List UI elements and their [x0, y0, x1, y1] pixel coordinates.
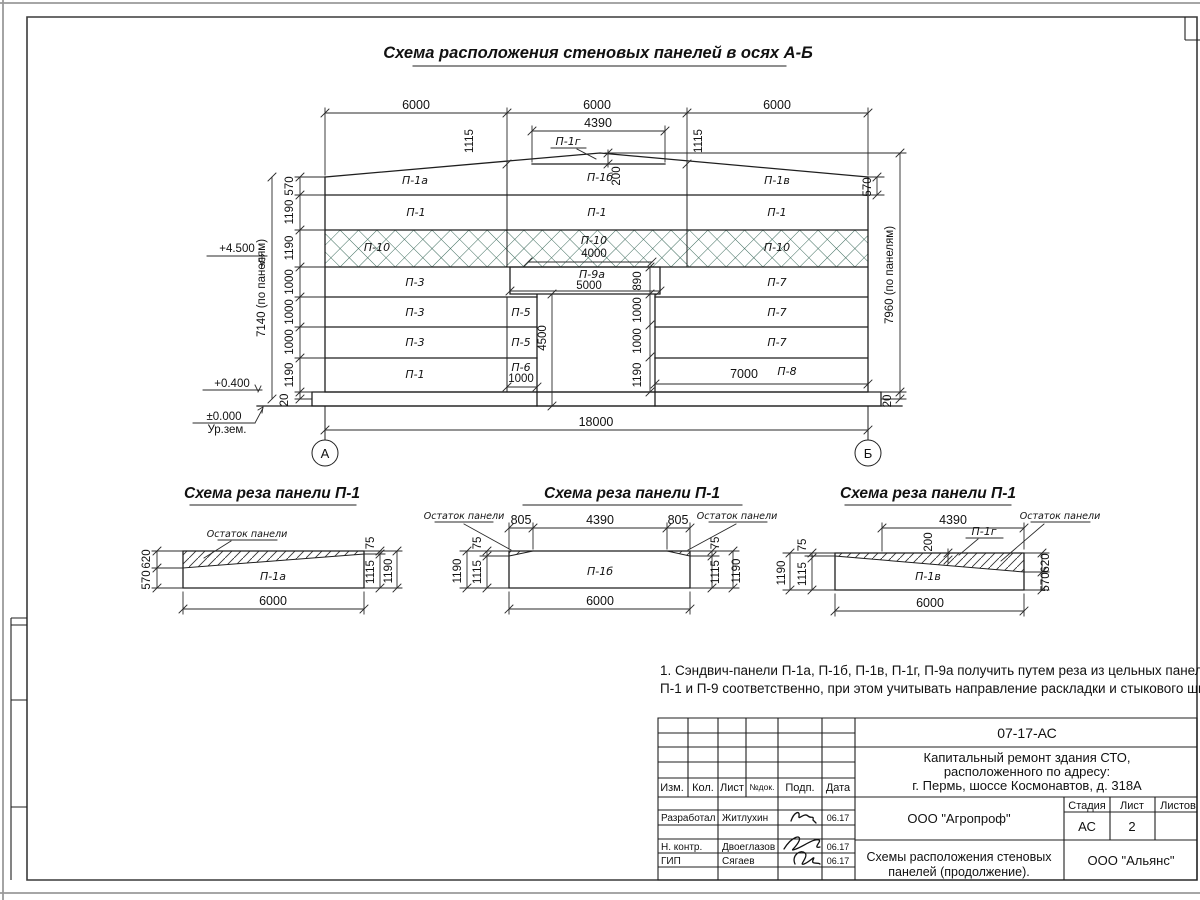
project-name-line1: Капитальный ремонт здания СТО,: [924, 750, 1131, 765]
panel-label-p7-r5: П-7: [767, 306, 786, 319]
scheme3-dim-1115: 1115: [797, 562, 809, 586]
ground-label: Ур.зем.: [207, 424, 246, 436]
cut-scheme-2: Схема реза панели П-1 Остаток панели Ост…: [424, 485, 778, 614]
panel-label-p3-r4: П-3: [405, 276, 424, 289]
scheme3-dim-4390: 4390: [939, 513, 967, 527]
scheme1-dim-1115: 1115: [365, 560, 377, 584]
dim-left-20: 20: [279, 394, 291, 407]
dim-5000: 5000: [576, 280, 602, 292]
panel-label-p10-b: П-10: [581, 234, 607, 247]
dim-left-total: 7140 (по панелям): [256, 239, 268, 337]
row-gip-role: ГИП: [661, 856, 681, 867]
panel-label-p1v: П-1в: [764, 174, 790, 187]
level-mark-0400: +0.400: [214, 378, 250, 390]
sheets-label: Листов: [1160, 800, 1196, 812]
dim-left-1000c: 1000: [284, 329, 296, 355]
dim-1115-left: 1115: [464, 129, 476, 153]
sheet-value: 2: [1128, 819, 1135, 834]
row-ncontrol-date: 06.17: [827, 842, 850, 852]
scheme1-dim-570: 570: [141, 570, 153, 589]
scheme1-dim-75: 75: [365, 537, 377, 550]
sheet-title-line2: панелей (продолжение).: [888, 865, 1029, 879]
row-developer-date: 06.17: [827, 813, 850, 823]
signature-developer: [791, 813, 816, 823]
dim-4390: 4390: [584, 116, 612, 130]
header-izm: Изм.: [660, 782, 684, 794]
scheme3-dim-1190: 1190: [776, 561, 788, 586]
scheme1-dim-6000: 6000: [259, 594, 287, 608]
level-mark-0000: ±0.000: [206, 411, 241, 423]
stage-value: АС: [1078, 819, 1096, 834]
panel-label-p1g: П-1г: [555, 135, 580, 148]
scheme3-dim-75: 75: [797, 539, 809, 552]
panel-label-p10-c: П-10: [764, 241, 790, 254]
scheme1-dim-620: 620: [141, 549, 153, 568]
sheet-title-line1: Схемы расположения стеновых: [867, 850, 1053, 864]
level-mark-4500: +4.500: [219, 243, 255, 255]
row-gip-name: Сягаев: [722, 856, 755, 867]
dim-left-1190b: 1190: [284, 236, 296, 261]
scheme2-panel-label: П-1б: [587, 565, 613, 578]
dim-18000: 18000: [579, 415, 614, 429]
axis-label-b: Б: [864, 446, 873, 461]
scheme2-dim-805-left: 805: [511, 513, 532, 527]
drawing-canvas: Схема расположения стеновых панелей в ос…: [0, 0, 1200, 900]
dim-1000-p6: 1000: [508, 373, 534, 385]
dim-1115-right: 1115: [693, 129, 705, 153]
title-block: 07-17-АС Капитальный ремонт здания СТО, …: [658, 718, 1197, 880]
scheme3-title: Схема реза панели П-1: [840, 485, 1016, 502]
header-list: Лист: [720, 782, 744, 794]
dim-bay-2: 6000: [583, 98, 611, 112]
panel-label-p1-r2b: П-1: [587, 206, 606, 219]
panel-label-p5-r5: П-5: [511, 306, 530, 319]
doc-number: 07-17-АС: [997, 725, 1057, 741]
scheme3-dim-6000: 6000: [916, 596, 944, 610]
dim-door-1000a: 1000: [632, 297, 644, 323]
scheme3-dim-570: 570: [1040, 572, 1052, 591]
row-ncontrol-name: Двоеглазов: [722, 842, 775, 853]
row-gip-date: 06.17: [827, 856, 850, 866]
header-podp: Подп.: [785, 782, 814, 794]
company-name: ООО "Агропроф": [907, 811, 1011, 826]
scheme2-remnant-label-left: Остаток панели: [424, 511, 505, 522]
panel-label-p7-r4: П-7: [767, 276, 786, 289]
panel-label-p3-r6: П-3: [405, 336, 424, 349]
row-developer-name: Житлухин: [722, 813, 768, 824]
scheme2-dim-1115-right: 1115: [710, 560, 722, 584]
cut-scheme-3: Схема реза панели П-1 Остаток панели П-1…: [776, 485, 1100, 616]
header-data: Дата: [826, 782, 851, 794]
dim-bay-1: 6000: [402, 98, 430, 112]
scheme1-dim-1190: 1190: [383, 559, 395, 584]
scheme2-dim-1190-left: 1190: [452, 559, 464, 584]
panel-label-p1-r7: П-1: [405, 368, 424, 381]
scheme3-dim-620: 620: [1040, 553, 1052, 572]
scheme1-remnant-label: Остаток панели: [207, 529, 288, 540]
stage-label: Стадия: [1068, 800, 1106, 812]
header-ndok: №док.: [750, 782, 775, 792]
scheme2-remnant-label-right: Остаток панели: [697, 511, 778, 522]
dim-7000: 7000: [730, 367, 758, 381]
dim-left-1000b: 1000: [284, 299, 296, 325]
page-title: Схема расположения стеновых панелей в ос…: [383, 44, 813, 62]
scheme2-dim-1190-right: 1190: [731, 559, 743, 584]
scheme1-panel-label: П-1а: [260, 570, 286, 583]
dim-left-570: 570: [284, 176, 296, 195]
scheme2-dim-75-left: 75: [472, 537, 484, 550]
scheme2-dim-75-right: 75: [710, 537, 722, 550]
dim-left-1000a: 1000: [284, 269, 296, 295]
dim-bay-3: 6000: [763, 98, 791, 112]
scheme2-dim-1115-left: 1115: [472, 560, 484, 584]
sheet-label: Лист: [1120, 800, 1144, 812]
row-ncontrol-role: Н. контр.: [661, 842, 702, 853]
scheme3-panel-label: П-1в: [915, 570, 941, 583]
dim-left-1190c: 1190: [284, 363, 296, 388]
note: 1. Сэндвич-панели П-1а, П-1б, П-1в, П-1г…: [660, 663, 1200, 696]
panel-label-p10-a: П-10: [364, 241, 390, 254]
panel-label-p1-r2c: П-1: [767, 206, 786, 219]
dim-door-1190: 1190: [632, 363, 644, 388]
dim-4000: 4000: [581, 248, 607, 260]
drawing-sheet: Схема расположения стеновых панелей в ос…: [0, 0, 1200, 900]
scheme3-dim-200: 200: [923, 532, 935, 551]
dim-right-570: 570: [862, 177, 874, 196]
scheme2-dim-6000: 6000: [586, 594, 614, 608]
panel-label-p7-r6: П-7: [767, 336, 786, 349]
scheme3-remnant-label: Остаток панели: [1020, 511, 1101, 522]
dim-door-1000b: 1000: [632, 328, 644, 354]
cut-scheme-1: Схема реза панели П-1 Остаток панели П-1…: [141, 485, 402, 614]
panel-label-p1b: П-1б: [587, 171, 613, 184]
contractor-name: ООО "Альянс": [1088, 853, 1175, 868]
project-name-line2: расположенного по адресу:: [944, 764, 1110, 779]
dim-right-total: 7960 (по панелям): [884, 226, 896, 324]
note-line-2: П-1 и П-9 соответственно, при этом учиты…: [660, 681, 1200, 696]
panel-label-p5-r6: П-5: [511, 336, 530, 349]
scheme2-dim-4390: 4390: [586, 513, 614, 527]
header-kol: Кол.: [692, 782, 714, 794]
scheme3-wedge-label: П-1г: [971, 525, 996, 538]
row-developer-role: Разработал: [661, 812, 716, 824]
panel-label-p1a: П-1а: [402, 174, 428, 187]
scheme1-title: Схема реза панели П-1: [184, 485, 360, 502]
scheme2-remnant-hatch: [509, 551, 690, 556]
dim-4500: 4500: [537, 325, 549, 351]
panel-label-p3-r5: П-3: [405, 306, 424, 319]
project-name-line3: г. Пермь, шоссе Космонавтов, д. 318А: [912, 778, 1142, 793]
panel-label-p8: П-8: [777, 365, 796, 378]
axis-label-a: А: [321, 446, 330, 461]
dim-left-1190a: 1190: [284, 200, 296, 225]
note-line-1: 1. Сэндвич-панели П-1а, П-1б, П-1в, П-1г…: [660, 663, 1200, 678]
panel-label-p1-r2a: П-1: [406, 206, 425, 219]
scheme2-dim-805-right: 805: [668, 513, 689, 527]
dim-door-890: 890: [632, 271, 644, 290]
scheme2-title: Схема реза панели П-1: [544, 485, 720, 502]
dim-right-20: 20: [882, 395, 894, 408]
signature-gip: [794, 852, 820, 865]
